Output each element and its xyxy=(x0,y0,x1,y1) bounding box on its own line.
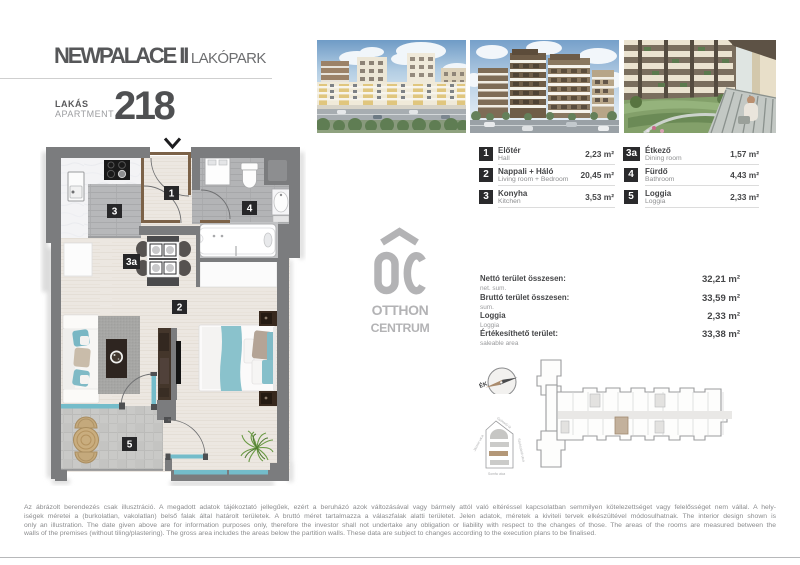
svg-text:4: 4 xyxy=(247,204,253,215)
svg-text:CENTRUM: CENTRUM xyxy=(371,321,430,335)
svg-text:Jázmin utca: Jázmin utca xyxy=(472,434,484,452)
svg-text:3: 3 xyxy=(112,207,118,218)
svg-text:3a: 3a xyxy=(126,257,138,268)
svg-text:1: 1 xyxy=(169,189,175,200)
svg-text:Somfa utca: Somfa utca xyxy=(488,472,505,476)
svg-text:2: 2 xyxy=(177,303,183,314)
svg-text:Szekszárdi utca: Szekszárdi utca xyxy=(517,438,526,462)
svg-text:5: 5 xyxy=(127,440,133,451)
svg-text:OTTHON: OTTHON xyxy=(372,302,429,318)
svg-text:ÉK: ÉK xyxy=(478,379,489,390)
